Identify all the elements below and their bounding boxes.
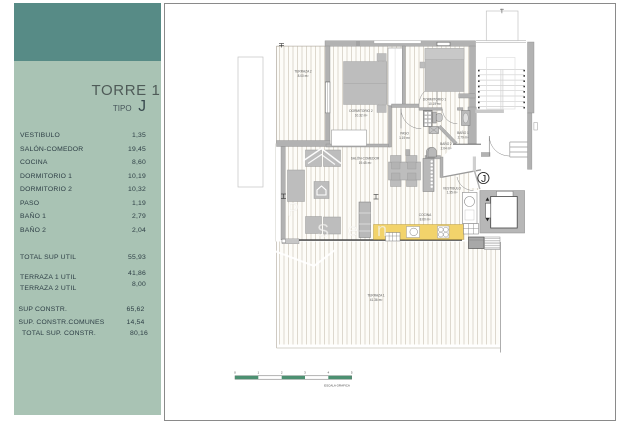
svg-text:41.36 m²: 41.36 m²	[370, 298, 383, 302]
svg-text:2: 2	[281, 371, 283, 375]
svg-text:P: P	[287, 200, 299, 220]
svg-text:J: J	[481, 173, 486, 185]
svg-text:S: S	[317, 221, 329, 241]
svg-text:BAÑO 2: BAÑO 2	[440, 141, 452, 146]
svg-text:BAÑO 1: BAÑO 1	[457, 130, 469, 135]
svg-text:SALÓN-COMEDOR: SALÓN-COMEDOR	[351, 156, 380, 161]
svg-text:10.19 m²: 10.19 m²	[428, 102, 441, 106]
svg-text:4: 4	[327, 371, 329, 375]
svg-text:e: e	[348, 220, 358, 240]
svg-text:3: 3	[304, 371, 306, 375]
svg-text:1.35 m²: 1.35 m²	[447, 190, 458, 194]
svg-text:1: 1	[257, 371, 259, 375]
svg-text:2.79 m²: 2.79 m²	[458, 135, 469, 139]
svg-text:1.19 m²: 1.19 m²	[399, 136, 410, 140]
svg-text:8.00 m²: 8.00 m²	[298, 74, 309, 78]
svg-text:10.32 m²: 10.32 m²	[355, 113, 368, 117]
svg-text:5: 5	[351, 371, 353, 375]
svg-text:2.04 m²: 2.04 m²	[441, 146, 452, 150]
svg-text:n: n	[377, 220, 387, 240]
svg-text:0: 0	[234, 371, 236, 375]
svg-text:19.45 m²: 19.45 m²	[359, 161, 372, 165]
svg-text:8.60 m²: 8.60 m²	[420, 217, 431, 221]
svg-text:ESCALA GRAFICA: ESCALA GRAFICA	[324, 384, 350, 388]
